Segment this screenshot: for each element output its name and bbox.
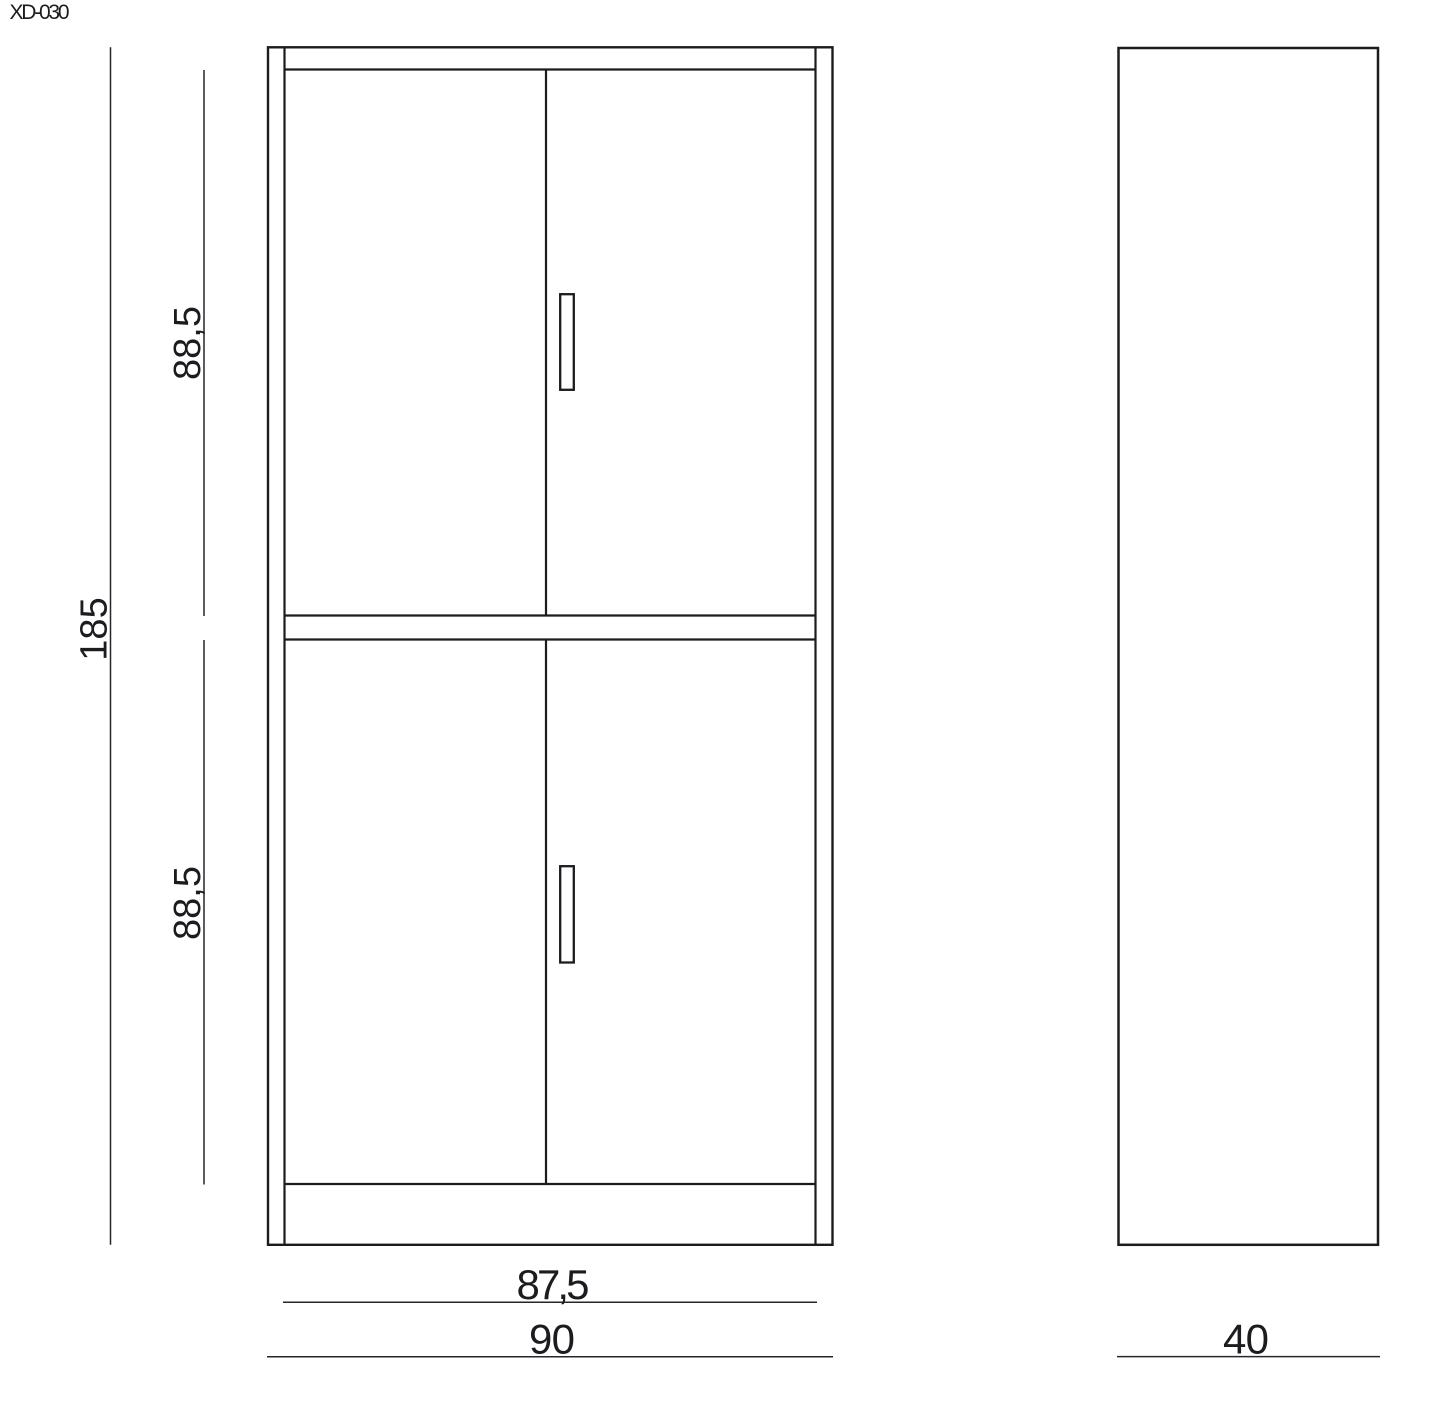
svg-text:185: 185 xyxy=(74,597,116,660)
svg-text:XD-030: XD-030 xyxy=(10,1,70,24)
svg-text:40: 40 xyxy=(1223,1315,1269,1362)
svg-text:90: 90 xyxy=(529,1315,575,1362)
svg-text:87,5: 87,5 xyxy=(517,1261,590,1308)
svg-text:88,5: 88,5 xyxy=(167,306,209,380)
svg-text:88,5: 88,5 xyxy=(167,866,209,940)
